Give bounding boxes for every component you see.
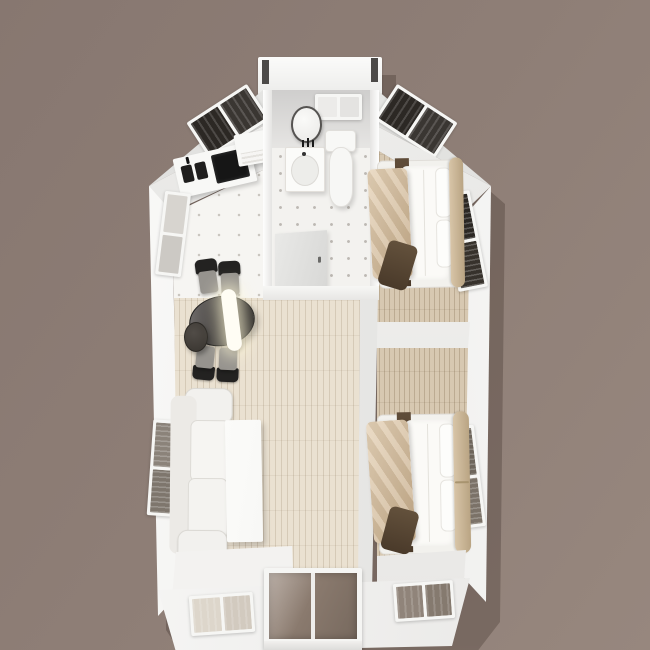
bed-bottom[interactable] [371,411,471,557]
bathroom-window[interactable] [315,94,362,120]
window-pane [318,97,337,117]
window-pane [158,234,182,274]
window-pane [163,194,187,234]
vanity-sink[interactable] [285,147,325,192]
entry-glass-door[interactable] [264,568,362,650]
coffee-table[interactable] [225,420,263,543]
toilet[interactable] [323,128,357,208]
side-stool[interactable] [184,322,208,352]
sink-faucet-dot [302,152,306,156]
chair-seat [219,348,238,371]
door-handle [318,257,321,263]
gable-post-left [262,60,269,84]
door-mullion [311,573,315,639]
chair-seat [198,270,219,294]
eave-window-right[interactable] [393,580,456,622]
bathroom-bottom-wall [263,286,379,300]
sink-bowl [291,155,319,186]
window-pane [340,97,359,117]
bed-top[interactable] [371,157,465,291]
bathroom-left-wall [263,90,272,300]
sofa[interactable] [169,388,231,573]
render-canvas[interactable]: Top-down 3D render of a small home floor… [0,0,650,650]
headboard [449,157,465,287]
window-blinds [424,583,452,617]
toilet-bowl [329,147,353,207]
eave-window-left[interactable] [189,592,256,636]
window-pane [192,597,222,633]
gable-post-right [371,58,378,82]
bathroom-door-open[interactable] [275,230,327,291]
window-pane [222,595,252,631]
door-threshold [264,641,362,650]
headboard-seam [455,481,469,483]
window-blinds [396,585,424,619]
